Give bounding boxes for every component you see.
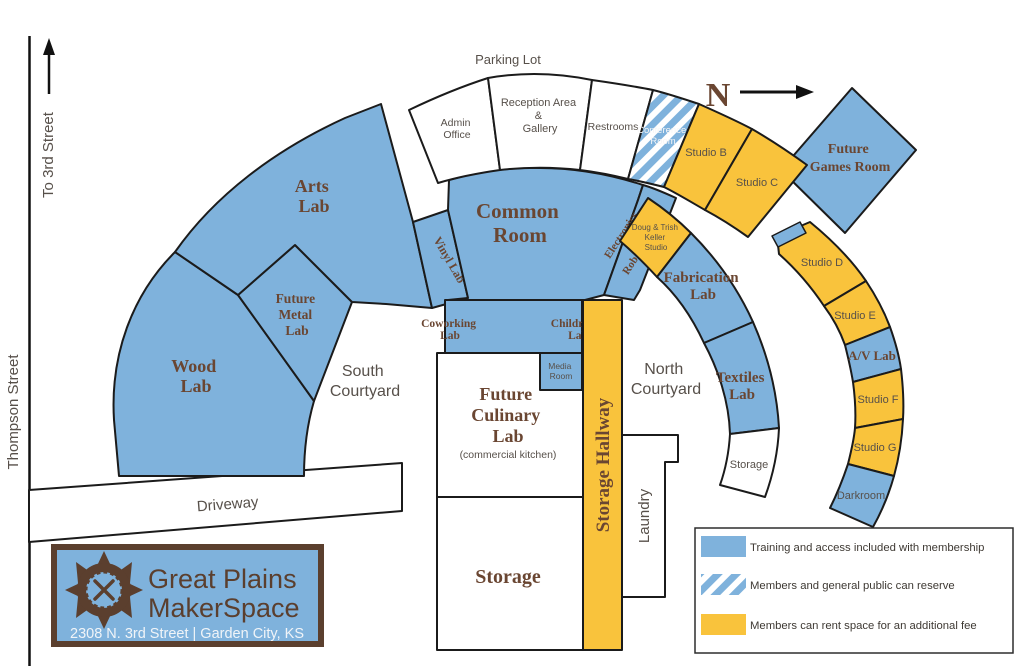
room-textiles-lab: Textiles Lab [704,322,779,434]
to-3rd-street-label: To 3rd Street [40,111,57,198]
legend-label-blue: Training and access included with member… [750,542,984,554]
room-media-room: Media Room [540,353,582,390]
svg-text:Media Room: Media Room [548,361,574,381]
logo-address: 2308 N. 3rd Street | Garden City, KS [70,626,304,642]
floor-plan-svg: To 3rd Street Thompson Street Driveway F… [0,0,1024,672]
legend-swatch-blue [701,536,746,557]
to-3rd-street-arrow-icon [43,38,55,94]
svg-text:Storage: Storage [475,566,541,588]
south-courtyard-label: South Courtyard [330,363,400,400]
svg-text:Studio G: Studio G [854,442,897,454]
svg-text:Studio F: Studio F [858,394,899,406]
room-storage-main: Storage [437,497,583,650]
svg-text:Storage Hallway: Storage Hallway [593,397,614,532]
legend-swatch-striped [701,574,746,595]
svg-text:Admin Office: Admin Office [441,117,474,141]
svg-text:Studio C: Studio C [736,177,778,189]
room-laundry: Laundry [622,435,678,597]
room-darkroom: Darkroom [830,464,894,527]
room-storage-arc: Storage [720,428,779,497]
svg-text:Restrooms: Restrooms [588,121,639,133]
room-admin-office: Admin Office [409,78,500,183]
legend-swatch-yellow [701,614,746,635]
legend-label-yellow: Members can rent space for an additional… [750,620,977,632]
svg-text:Laundry: Laundry [636,488,653,543]
north-compass-icon: N [706,77,814,114]
logo-name-line2: MakerSpace [148,593,300,623]
svg-text:Arts Lab: Arts Lab [295,176,334,216]
room-storage-hallway: Storage Hallway [583,300,622,650]
svg-text:Studio B: Studio B [685,147,727,159]
parking-lot-label: Parking Lot [475,52,541,67]
gear-flower-logo-icon [65,551,143,629]
svg-text:Studio E: Studio E [834,310,876,322]
room-coworking-childrens: Coworking Lab Children's Lab [421,300,605,353]
svg-text:A/V Lab: A/V Lab [848,348,896,363]
svg-text:N: N [706,77,731,114]
north-courtyard-label: North Courtyard [631,361,701,398]
logo-box: Great Plains MakerSpace 2308 N. 3rd Stre… [54,547,321,644]
thompson-street-label: Thompson Street [5,354,22,470]
svg-text:(commercial kitchen): (commercial kitchen) [460,449,557,461]
makerspace-floor-plan: To 3rd Street Thompson Street Driveway F… [0,0,1024,672]
room-reception-gallery: Reception Area & Gallery [488,74,592,170]
logo-name-line1: Great Plains [148,564,297,594]
svg-text:Studio D: Studio D [801,257,843,269]
svg-text:Darkroom: Darkroom [837,490,885,502]
svg-text:Storage: Storage [730,459,769,471]
legend: Training and access included with member… [695,528,1013,653]
legend-label-striped: Members and general public can reserve [750,580,955,592]
